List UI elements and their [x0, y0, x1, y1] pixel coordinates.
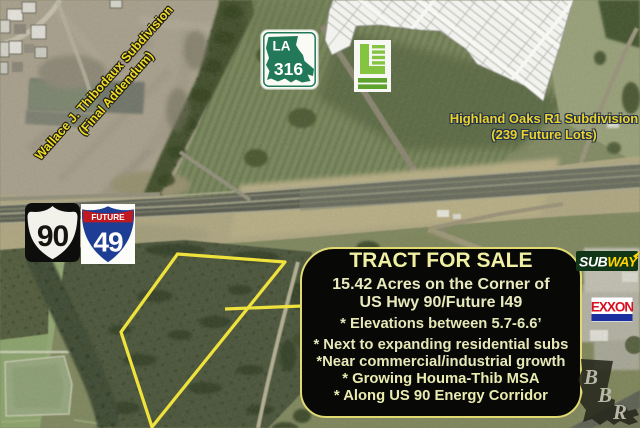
svg-text:FUTURE: FUTURE	[91, 213, 125, 222]
svg-text:316: 316	[274, 59, 303, 79]
svg-text:EXXON: EXXON	[591, 300, 633, 315]
svg-text:B: B	[583, 365, 598, 389]
svg-text:49: 49	[93, 227, 123, 258]
svg-text:90: 90	[37, 220, 69, 253]
svg-text:SUBWAY: SUBWAY	[579, 254, 639, 270]
svg-text:LA: LA	[273, 39, 291, 54]
svg-text:B: B	[597, 383, 612, 407]
svg-text:R: R	[612, 400, 627, 424]
